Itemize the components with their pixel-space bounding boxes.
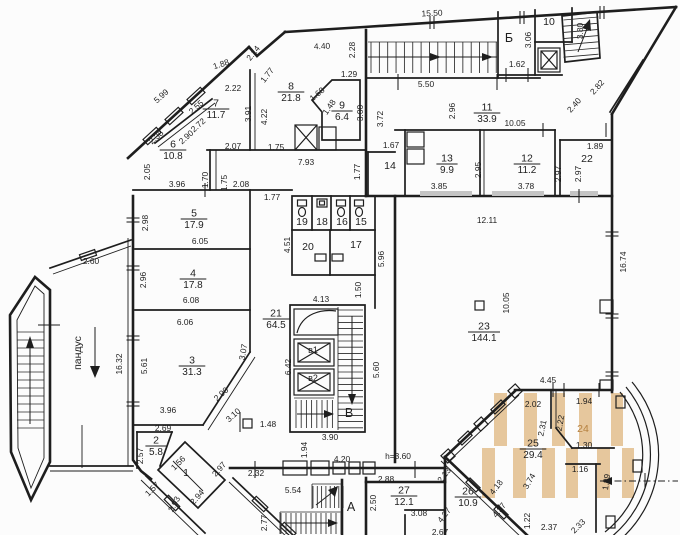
machine-room <box>294 309 338 335</box>
dimension-label: 1.57 <box>143 479 162 498</box>
text-label: Б <box>505 31 513 45</box>
dimension-label: 1.75 <box>219 175 229 192</box>
dimension-label: h=3.60 <box>385 451 411 461</box>
room-number: 12 <box>521 153 533 165</box>
dimension-label: 1.48 <box>260 419 277 429</box>
room-area: 64.5 <box>266 320 286 331</box>
dimension-label: 7.93 <box>298 157 315 167</box>
dimension-label: 2.28 <box>347 42 357 59</box>
room-labels: 711.7610.8821.896.41133.9139.91211.2517.… <box>145 81 546 510</box>
room-area: 31.3 <box>182 367 202 378</box>
room-area: 12.1 <box>394 497 414 508</box>
text-label: 22 <box>581 153 593 165</box>
dimension-label: 2.82 <box>588 77 607 96</box>
dimension-label: 1.88 <box>212 57 231 72</box>
text-label: в1 <box>308 345 318 355</box>
text-label: 14 <box>384 160 396 172</box>
dimension-label: 3.78 <box>518 181 535 191</box>
dimension-label: 3.00 <box>355 105 365 122</box>
dimension-label: 6.06 <box>177 317 194 327</box>
dimension-label: 2.96 <box>138 272 148 289</box>
dimension-label: 3.08 <box>411 508 428 518</box>
room-area: 11.2 <box>518 165 537 176</box>
dimension-label: 2.22 <box>225 83 242 93</box>
room-number: 21 <box>270 308 282 320</box>
dimension-label: 4.13 <box>313 294 330 304</box>
room-area: 10.9 <box>458 498 478 509</box>
room-number: 9 <box>339 100 345 112</box>
dimension-label: 5.60 <box>371 362 381 379</box>
dimension-label: 2.97 <box>573 166 583 183</box>
text-label: 15 <box>355 216 367 228</box>
room-area: 5.8 <box>149 447 163 458</box>
dimension-label: 1.89 <box>600 473 612 491</box>
dimension-label: 2.02 <box>525 399 542 409</box>
text-label: 20 <box>302 241 314 253</box>
dimension-label: 2.95 <box>473 162 483 179</box>
dimension-label: 10.05 <box>505 118 526 128</box>
room-number: 13 <box>441 153 453 165</box>
text-label: 24 <box>577 423 589 435</box>
dimension-label: 3.85 <box>431 181 448 191</box>
room-number: 25 <box>527 438 539 450</box>
text-label: В <box>345 406 353 420</box>
text-label: в2 <box>308 373 318 383</box>
dimension-label: 5.54 <box>285 485 302 495</box>
dimension-label: 3.06 <box>523 32 533 49</box>
room-area: 10.8 <box>163 151 183 162</box>
text-label: А <box>347 500 356 514</box>
room-number: 2 <box>153 435 159 447</box>
dimension-label: 3.96 <box>160 405 177 415</box>
dimension-label: 2.50 <box>368 495 378 512</box>
dimension-label: 2.57 <box>135 448 145 465</box>
toilet-icon <box>337 200 346 217</box>
dimension-label: 3.72 <box>375 111 385 128</box>
window-ticks <box>127 6 619 406</box>
dimension-label: 2.96 <box>447 103 457 120</box>
dimension-label: 5.96 <box>376 251 386 268</box>
dimension-label: 2.40 <box>565 95 584 114</box>
sink-icon <box>315 254 326 261</box>
room-area: 144.1 <box>471 333 496 344</box>
shaft <box>407 132 424 147</box>
room-area: 17.8 <box>183 280 203 291</box>
dimension-label: 2.88 <box>378 474 395 484</box>
dimension-label: 2.69 <box>155 423 172 433</box>
dimension-label: 2.37 <box>541 522 558 532</box>
dimension-label: 1.94 <box>299 442 309 459</box>
dimension-label: 1.94 <box>576 396 593 406</box>
dimension-label: 1.70 <box>200 172 210 189</box>
elevator-icon <box>538 48 560 72</box>
text-label: 19 <box>296 216 308 228</box>
room-number: 7 <box>213 98 219 110</box>
text-label: 18 <box>316 216 328 228</box>
floor-plan: 711.7610.8821.896.41133.9139.91211.2517.… <box>0 0 680 535</box>
room-area: 21.8 <box>281 93 301 104</box>
dimension-label: 3.96 <box>169 179 186 189</box>
dimension-label: 1.22 <box>522 513 532 530</box>
toilet-icon <box>355 200 364 217</box>
room-area: 9.9 <box>440 165 454 176</box>
dimension-label: 1.29 <box>341 69 358 79</box>
door-sill <box>492 191 544 196</box>
dimension-label: 3.90 <box>322 432 339 442</box>
dimension-label: 6.08 <box>183 295 200 305</box>
dimension-label: 1.77 <box>258 65 276 84</box>
sink-icon <box>332 254 343 261</box>
dimension-label: 2.14 <box>244 43 262 62</box>
room-number: 3 <box>189 355 195 367</box>
toilet-icon <box>298 200 307 217</box>
dimension-label: 2.94 <box>188 487 207 506</box>
dimension-label: 2.32 <box>248 468 265 478</box>
text-label: 17 <box>350 239 362 251</box>
dimension-label: 10.05 <box>501 292 511 313</box>
room-number: 6 <box>170 139 176 151</box>
room-number: 4 <box>190 268 196 280</box>
dimension-label: 5.99 <box>152 87 171 106</box>
dimension-label: 16.32 <box>114 353 124 374</box>
square-symbol <box>475 301 484 310</box>
text-label: 10 <box>543 16 555 28</box>
room-number: 23 <box>478 321 490 333</box>
dimension-label: 2.97 <box>210 459 229 478</box>
dimension-label: 1.75 <box>268 142 285 152</box>
dimension-label: 2.05 <box>142 164 152 181</box>
dimension-label: 2.31 <box>535 419 548 437</box>
dimension-label: 15.50 <box>421 7 443 18</box>
room-area: 29.4 <box>523 450 543 461</box>
room-number: 27 <box>398 485 410 497</box>
shaft <box>407 149 424 164</box>
text-label: пандус <box>72 336 84 370</box>
dimension-label: 2.67 <box>432 527 449 535</box>
dimension-label: 4.45 <box>540 375 557 385</box>
dimension-label: 3.91 <box>243 106 253 123</box>
dimension-label: 5.50 <box>418 79 435 89</box>
direction-arrows <box>26 19 678 527</box>
dimension-label: 2.33 <box>569 516 588 535</box>
door-sill <box>420 191 472 196</box>
dimension-label: 1.89 <box>587 141 604 151</box>
room-number: 8 <box>288 81 294 93</box>
room-area: 6.4 <box>335 112 349 123</box>
dimension-label: 2.97 <box>553 166 563 183</box>
dimension-label: 2.08 <box>233 179 250 189</box>
dimension-label: 6.42 <box>283 359 293 376</box>
room-area: 11.7 <box>207 110 226 121</box>
elevator-icon <box>295 125 336 150</box>
dimension-label: 4.40 <box>314 41 331 52</box>
dimension-label: 1.30 <box>576 440 593 450</box>
dimension-label: 3.80 <box>575 23 585 40</box>
dimension-label: 4.27 <box>435 505 453 524</box>
room-area: 17.9 <box>184 220 204 231</box>
dimension-label: 6.05 <box>192 236 209 246</box>
room-number: 5 <box>191 208 197 220</box>
floor-plan-page: 711.7610.8821.896.41133.9139.91211.2517.… <box>0 0 680 535</box>
square-symbol <box>243 419 252 428</box>
dimension-label: 2.60 <box>83 256 100 266</box>
dimension-label: 5.61 <box>139 358 149 375</box>
dimension-label: 4.22 <box>259 109 269 126</box>
dimension-label: 4.51 <box>282 237 292 254</box>
sink-icon <box>317 199 327 207</box>
text-label: 1 <box>183 467 189 479</box>
dimension-label: 1.77 <box>264 192 281 202</box>
dimension-label: 3.07 <box>237 343 250 361</box>
dimension-label: 2.77 <box>259 515 269 532</box>
dimension-label: 4.20 <box>334 454 351 464</box>
dimension-label: 2.07 <box>225 141 242 151</box>
dimension-label: 1.16 <box>572 464 589 474</box>
bay-pillar <box>606 516 615 528</box>
dimension-label: 2.98 <box>140 215 150 232</box>
room-number: 11 <box>482 102 493 114</box>
dimension-label: 1.62 <box>509 59 526 69</box>
bay-pillar <box>633 460 642 472</box>
dimension-label: 1.77 <box>352 164 362 181</box>
room-area: 33.9 <box>477 114 497 125</box>
room-number: 26 <box>462 486 474 498</box>
dimension-label: 12.11 <box>477 215 498 225</box>
door-sill <box>570 191 598 196</box>
text-label: 16 <box>336 216 348 228</box>
dimension-label: 1.50 <box>353 282 363 299</box>
dimension-label: 16.74 <box>618 251 628 272</box>
dimension-label: 1.67 <box>383 140 400 150</box>
